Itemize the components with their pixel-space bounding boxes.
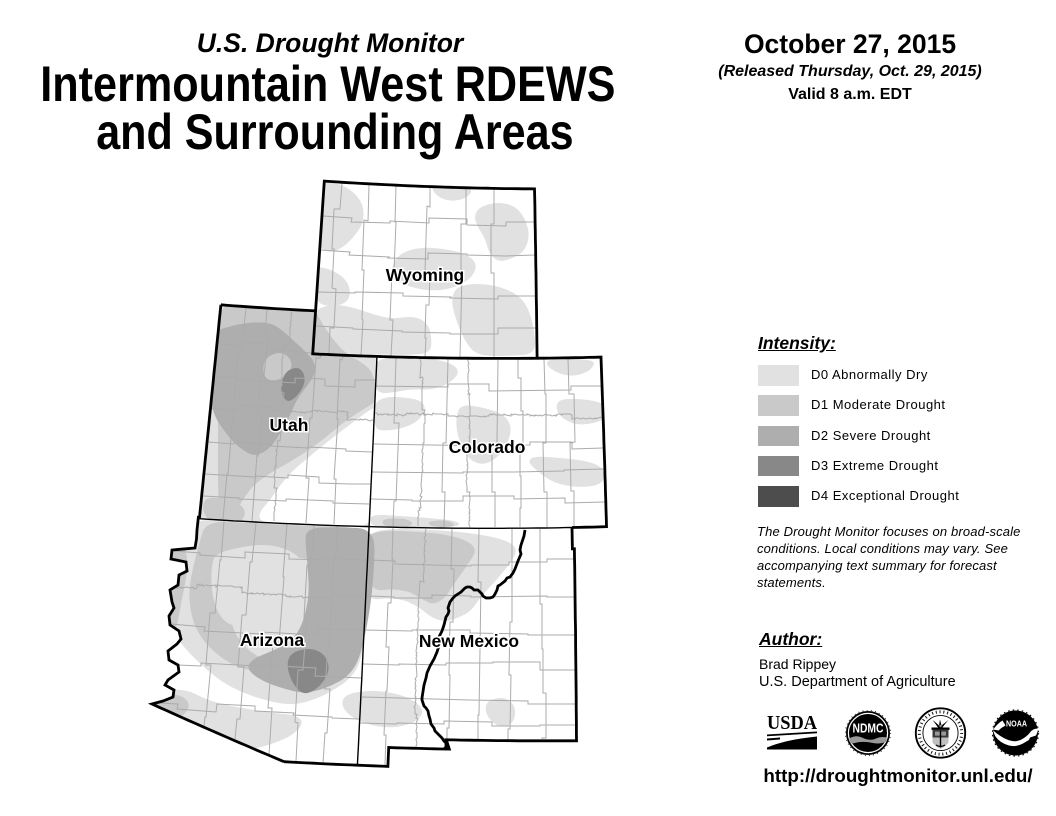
svg-text:New Mexico: New Mexico	[419, 631, 519, 651]
svg-text:NDMC: NDMC	[853, 721, 884, 736]
svg-text:NOAA: NOAA	[1006, 719, 1027, 729]
svg-text:Utah: Utah	[270, 415, 309, 435]
svg-text:Colorado: Colorado	[449, 437, 526, 457]
svg-text:USDA: USDA	[767, 713, 818, 734]
svg-text:Wyoming: Wyoming	[386, 265, 464, 285]
svg-text:Arizona: Arizona	[240, 630, 304, 650]
